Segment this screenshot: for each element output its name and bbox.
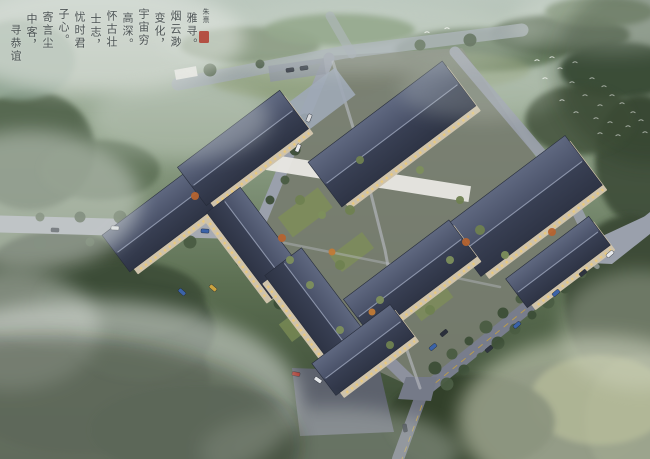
street-tree [498,308,509,319]
car-body [201,229,209,233]
courtyard-tree [306,281,314,289]
courtyard-tree [191,192,199,200]
courtyard-tree [335,260,345,270]
courtyard-tree [369,309,376,316]
architectural-rendering: 寻恭谊 中客， 寄言尘 子心。 忧时君 士志， 怀古壮 高深。 宇宙穷 变化， … [0,0,650,459]
courtyard-tree [318,211,326,219]
courtyard-tree [376,296,384,304]
courtyard-tree [462,238,470,246]
street-tree [459,365,470,376]
courtyard-tree [501,251,509,259]
courtyard-tree [548,228,556,236]
street-tree [492,337,505,350]
street-tree [281,176,290,185]
street-tree [465,337,474,346]
fog-patch [90,80,270,160]
street-tree [429,362,442,375]
street-tree [480,321,493,334]
street-tree [477,353,486,362]
courtyard-tree [425,305,435,315]
street-tree [447,349,458,360]
courtyard-tree [336,326,344,334]
street-tree [528,311,537,320]
courtyard-tree [295,195,305,205]
courtyard-tree [345,205,355,215]
courtyard-tree [386,341,394,349]
courtyard-tree [356,156,364,164]
car [201,229,209,233]
street-tree [266,196,275,205]
fog-patch [400,60,560,120]
courtyard-tree [329,249,336,256]
courtyard-tree [416,166,424,174]
scene-svg [0,0,650,459]
courtyard-tree [446,256,454,264]
courtyard-tree [475,225,485,235]
street-tree [441,378,454,391]
courtyard-tree [278,234,286,242]
courtyard-tree [286,256,294,264]
courtyard-tree [456,196,464,204]
